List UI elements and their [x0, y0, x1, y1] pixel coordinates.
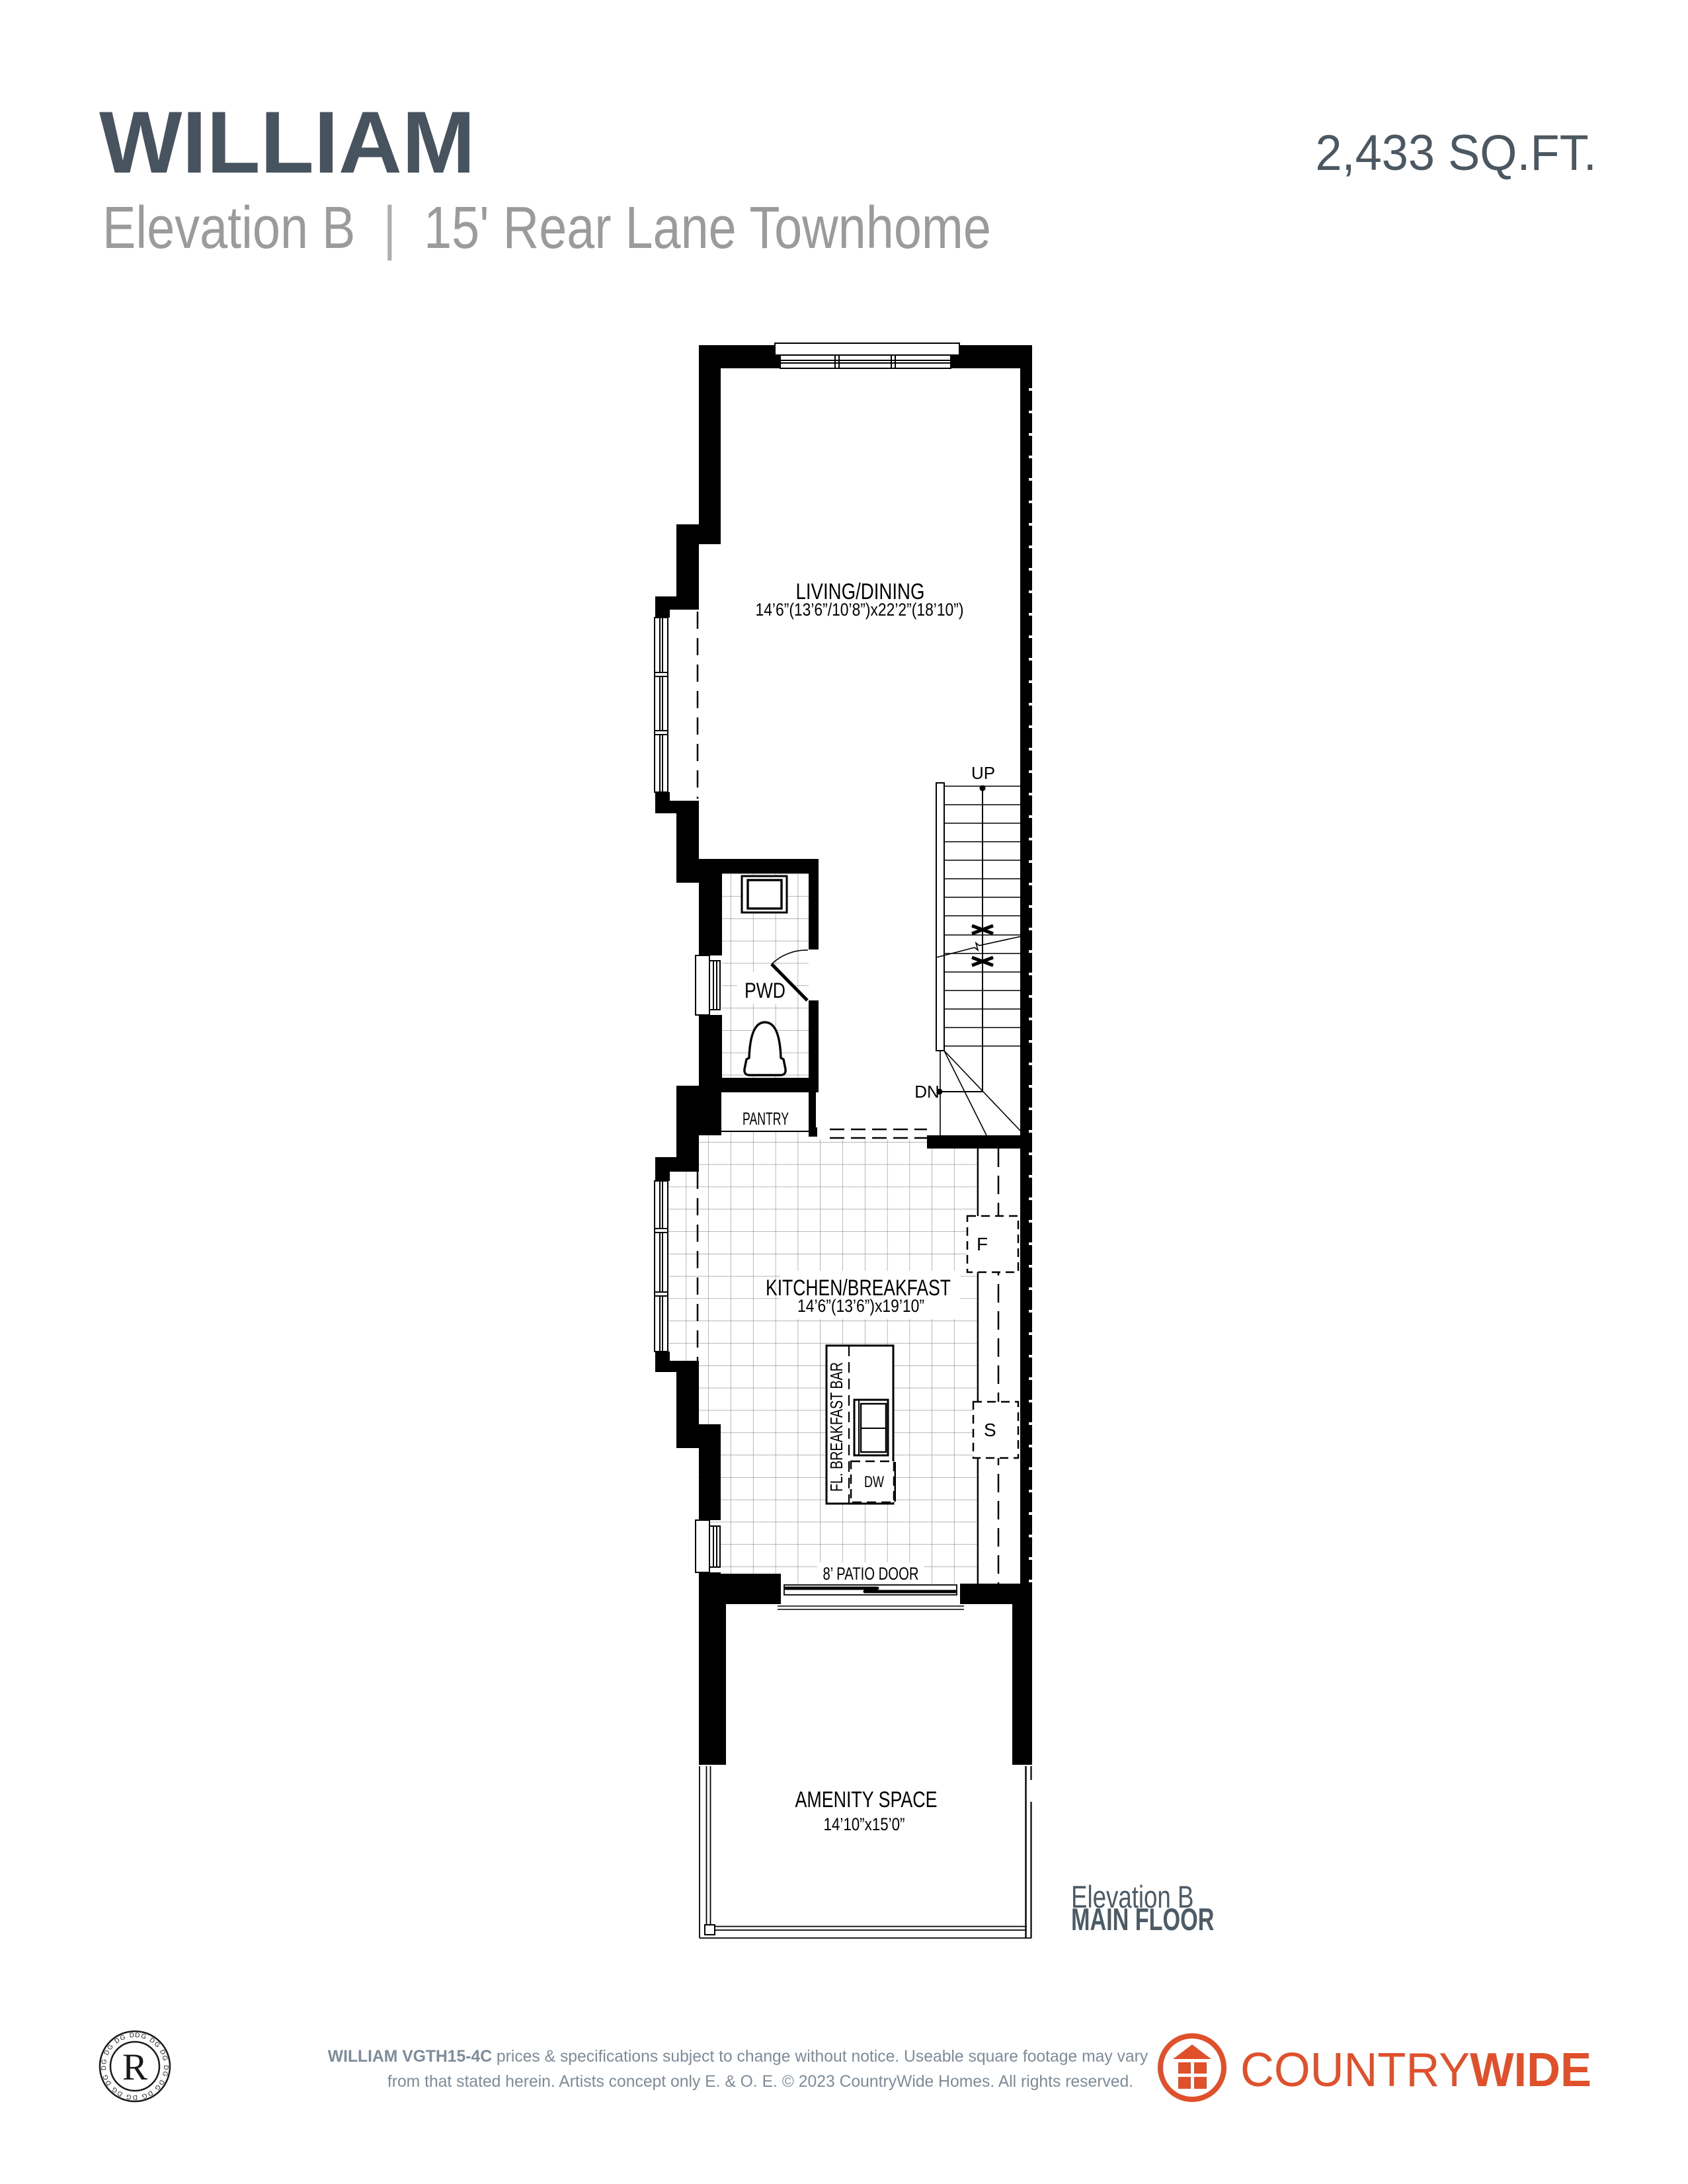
- svg-text:14’6”(13’6”)x19’10”: 14’6”(13’6”)x19’10”: [797, 1296, 924, 1316]
- svg-text:8’ PATIO DOOR: 8’ PATIO DOOR: [823, 1564, 919, 1584]
- svg-text:PANTRY: PANTRY: [743, 1109, 789, 1129]
- svg-text:S: S: [984, 1420, 996, 1440]
- svg-text:DN: DN: [914, 1082, 940, 1102]
- svg-text:14’10”x15’0”: 14’10”x15’0”: [824, 1814, 905, 1834]
- svg-text:14’6”(13’6”/10’8”)x22’2”(18’10: 14’6”(13’6”/10’8”)x22’2”(18’10”): [756, 600, 964, 620]
- svg-text:F: F: [977, 1234, 988, 1254]
- svg-text:R: R: [122, 2046, 147, 2088]
- svg-text:DG DG DG DG DG DG DG DG DG DG: DG DG DG DG DG DG DG DG DG DG DG DG DG D…: [0, 0, 169, 2101]
- svg-text:COUNTRYWIDE: COUNTRYWIDE: [1240, 2044, 1591, 2097]
- svg-text:UP: UP: [971, 763, 995, 783]
- svg-text:DW: DW: [864, 1473, 884, 1491]
- svg-text:AMENITY SPACE: AMENITY SPACE: [795, 1787, 938, 1812]
- svg-text:FL. BREAKFAST BAR: FL. BREAKFAST BAR: [826, 1362, 846, 1492]
- svg-text:PWD: PWD: [744, 979, 785, 1002]
